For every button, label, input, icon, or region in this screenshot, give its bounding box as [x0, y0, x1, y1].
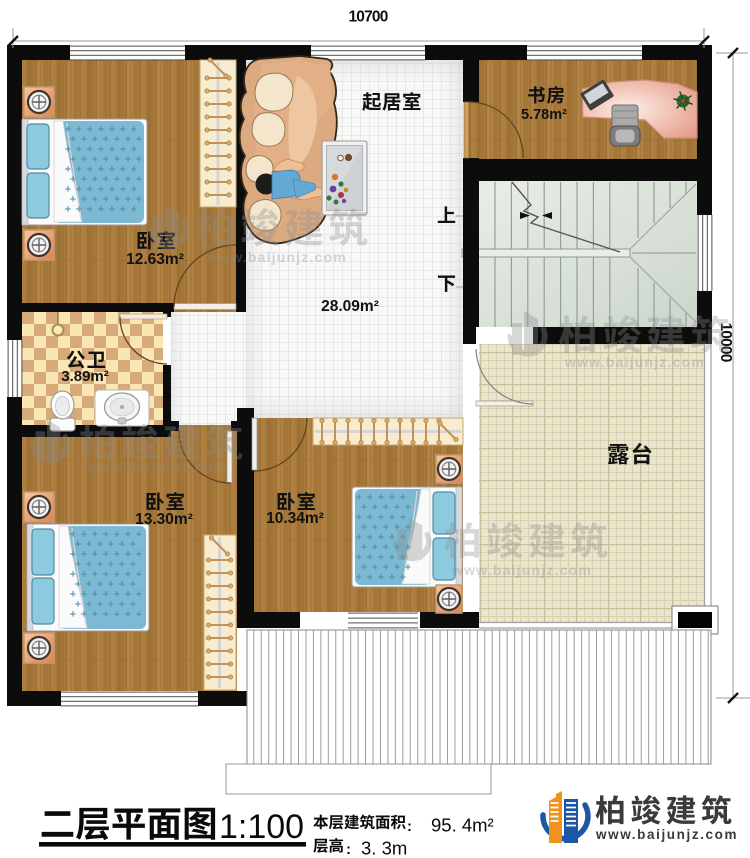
svg-text::: : [346, 841, 351, 858]
svg-text:28.09m²: 28.09m² [321, 298, 379, 315]
svg-text:13.30m²: 13.30m² [135, 511, 193, 528]
svg-text:www.baijunjz.com: www.baijunjz.com [86, 458, 227, 474]
svg-text:12.63m²: 12.63m² [126, 251, 184, 268]
svg-text:www.baijunjz.com: www.baijunjz.com [564, 354, 705, 370]
svg-text:10.34m²: 10.34m² [266, 510, 324, 527]
svg-text:www.baijunjz.com: www.baijunjz.com [451, 562, 592, 578]
svg-text:1:100: 1:100 [219, 808, 304, 846]
svg-text:5.78m²: 5.78m² [521, 107, 567, 123]
svg-text::: : [407, 818, 412, 835]
svg-text:95. 4m²: 95. 4m² [431, 815, 494, 836]
svg-text:10700: 10700 [348, 9, 387, 26]
svg-text:www.baijunjz.com: www.baijunjz.com [206, 249, 347, 265]
svg-text:3. 3m: 3. 3m [361, 838, 407, 858]
svg-text:www.baijunjz.com: www.baijunjz.com [595, 827, 738, 842]
svg-text:3.89m²: 3.89m² [61, 368, 109, 385]
